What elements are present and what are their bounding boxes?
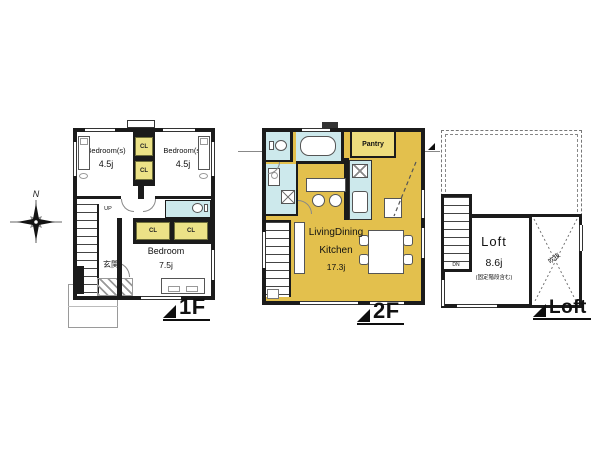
door-arc [143, 199, 156, 212]
nightstand-icon [79, 173, 88, 179]
closet-1f-4: CL [174, 222, 208, 240]
closet-1f-2: CL [135, 161, 153, 180]
stairs-up-label: UP [100, 206, 116, 213]
window [163, 128, 195, 132]
door-arc [121, 199, 134, 212]
section-line [425, 151, 440, 152]
floor-1f-text: 1F [179, 296, 206, 318]
window [421, 228, 425, 258]
approach-step-line [68, 306, 118, 307]
plan-1f: Bedroom(s) 4.5j Bedroom(s) 4.5j CL CL UP… [73, 128, 215, 300]
toilet-icon [192, 203, 203, 213]
window [262, 232, 266, 268]
floor-label-1f: 1F [163, 296, 210, 321]
window [579, 225, 583, 251]
bed-icon [161, 278, 205, 294]
window [441, 280, 445, 306]
stairs-dn-label: DN [446, 262, 466, 269]
loft-note: (固定階段含む) [459, 275, 529, 282]
wall [138, 186, 144, 199]
window [421, 190, 425, 218]
shoe-cabinet [77, 266, 84, 294]
floor-loft-text: Loft [549, 298, 587, 317]
window [211, 250, 215, 280]
compass-rose: N [8, 186, 64, 246]
marker-flag-icon [428, 143, 435, 150]
pillow-icon [186, 286, 198, 292]
nightstand-icon [199, 173, 208, 179]
floorplan-canvas: N Bedroom(s) 4.5j Bedroom(s) 4.5j CL CL [0, 0, 600, 450]
bed-icon [78, 136, 90, 170]
window [302, 128, 330, 132]
bedroom-c-label: Bedroom 7.5j [121, 246, 211, 271]
bedroom-c-name: Bedroom [121, 246, 211, 258]
floor-2f-text: 2F [373, 300, 400, 322]
pillow-icon [200, 138, 208, 145]
bedroom-c-area: 7.5j [121, 260, 211, 271]
window [211, 142, 215, 176]
floor-label-loft: Loft [533, 298, 591, 320]
closet-1f-1: CL [135, 137, 153, 156]
wall [155, 196, 211, 199]
toilet-tank-icon [204, 204, 208, 212]
annotation-lines [266, 132, 421, 301]
bay-vent [127, 120, 155, 128]
pillow-icon [168, 286, 180, 292]
window [457, 304, 497, 308]
section-line [238, 151, 262, 152]
window [73, 142, 77, 176]
entrance-porch-hatch [97, 278, 133, 296]
floor-label-2f: 2F [357, 300, 404, 325]
pillow-icon [80, 138, 88, 145]
toilet-room-1f [165, 200, 211, 218]
bed-icon [198, 136, 210, 170]
flag-icon [357, 309, 370, 322]
window [85, 128, 115, 132]
flag-icon [163, 305, 176, 318]
flag-icon [533, 304, 546, 317]
wall [77, 196, 121, 199]
plan-2f: Pantry LivingDining Kitchen [262, 128, 425, 305]
void-area: 吹抜 [529, 214, 582, 308]
window [300, 301, 358, 305]
closet-1f-3: CL [136, 222, 170, 240]
stairs-loft: DN [441, 194, 472, 272]
compass-north-label: N [33, 189, 40, 199]
